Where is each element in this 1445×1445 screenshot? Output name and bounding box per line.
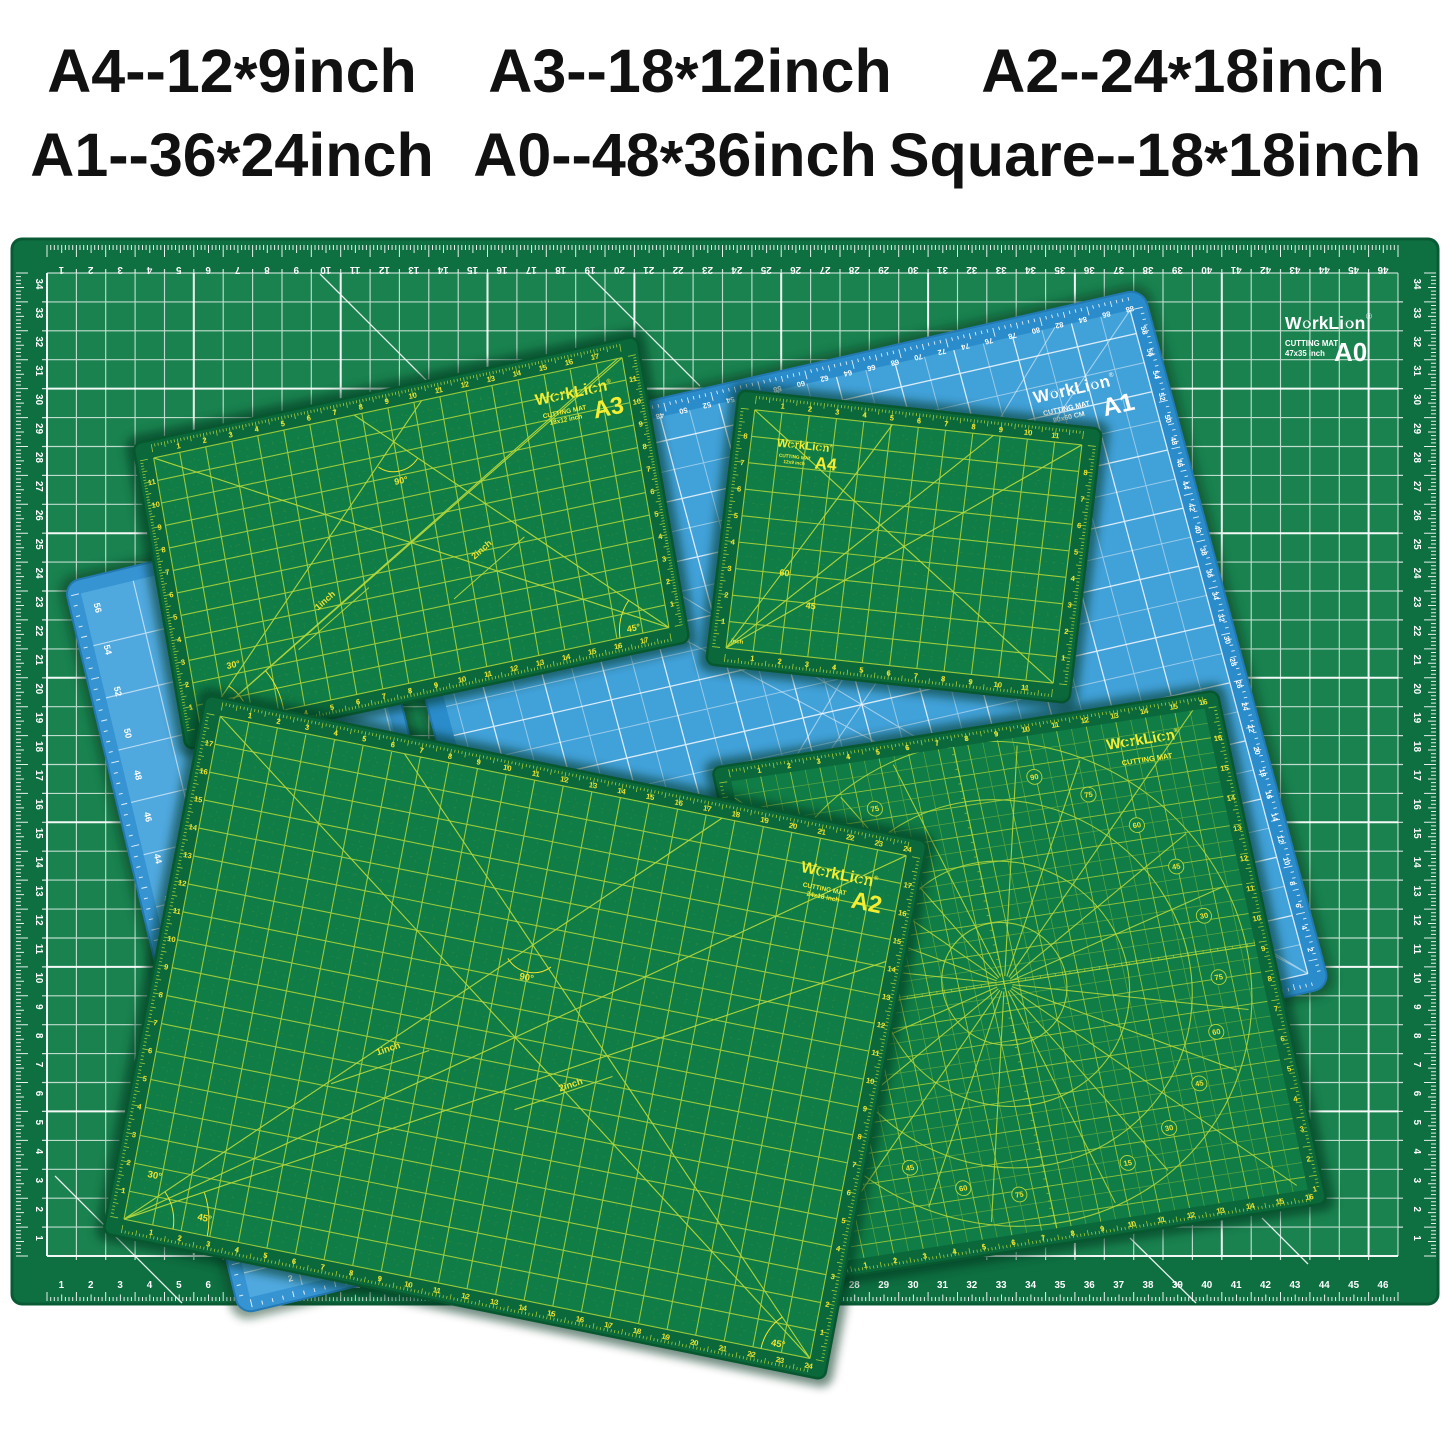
svg-text:27: 27 (1411, 481, 1422, 492)
svg-text:27: 27 (819, 264, 830, 275)
svg-text:17: 17 (1411, 770, 1422, 781)
svg-text:A1--36*24inch: A1--36*24inch (30, 121, 433, 196)
svg-text:17: 17 (903, 880, 913, 891)
svg-text:45: 45 (1348, 264, 1359, 275)
svg-text:6: 6 (205, 1280, 211, 1291)
svg-text:14: 14 (437, 264, 448, 275)
svg-text:1: 1 (1411, 1235, 1422, 1241)
svg-text:16: 16 (897, 908, 907, 919)
svg-text:45: 45 (805, 600, 816, 611)
svg-text:9: 9 (1411, 1004, 1422, 1010)
svg-text:12: 12 (559, 774, 569, 785)
svg-text:22: 22 (746, 1349, 756, 1360)
svg-text:12: 12 (460, 379, 470, 390)
svg-text:25: 25 (33, 539, 44, 550)
svg-text:23: 23 (33, 597, 44, 608)
svg-text:8: 8 (1411, 1033, 1422, 1039)
svg-text:13: 13 (408, 264, 419, 275)
svg-text:WorkLion: WorkLion (1285, 313, 1365, 333)
svg-text:23: 23 (874, 838, 884, 849)
svg-text:25: 25 (760, 264, 771, 275)
svg-text:39: 39 (1171, 264, 1182, 275)
svg-text:10: 10 (403, 1279, 413, 1290)
svg-text:19: 19 (33, 712, 44, 723)
svg-text:29: 29 (878, 264, 889, 275)
svg-text:3: 3 (117, 264, 123, 275)
svg-text:1: 1 (58, 264, 64, 275)
svg-text:11: 11 (434, 385, 443, 396)
svg-text:22: 22 (672, 264, 683, 275)
svg-text:21: 21 (1411, 654, 1422, 665)
svg-text:32: 32 (966, 1280, 977, 1291)
svg-text:32: 32 (33, 336, 44, 347)
svg-text:40: 40 (1201, 264, 1212, 275)
svg-text:7: 7 (234, 264, 240, 275)
svg-text:12: 12 (876, 1020, 886, 1031)
svg-text:33: 33 (995, 264, 1006, 275)
svg-text:43: 43 (1289, 1280, 1300, 1291)
svg-text:23: 23 (775, 1355, 785, 1366)
svg-text:32: 32 (1411, 336, 1422, 347)
svg-text:12: 12 (33, 915, 44, 926)
svg-text:13: 13 (183, 850, 193, 861)
svg-text:23: 23 (702, 264, 713, 275)
svg-text:12: 12 (1411, 915, 1422, 926)
svg-text:26: 26 (1411, 510, 1422, 521)
svg-text:31: 31 (1411, 365, 1422, 376)
svg-text:13: 13 (489, 1297, 499, 1308)
svg-text:17: 17 (525, 264, 536, 275)
svg-text:25: 25 (1411, 539, 1422, 550)
svg-text:22: 22 (845, 832, 855, 843)
svg-text:46: 46 (1378, 1280, 1389, 1291)
svg-text:10: 10 (502, 763, 512, 774)
svg-text:2: 2 (33, 1206, 44, 1212)
svg-text:4: 4 (147, 1280, 153, 1291)
svg-text:17: 17 (33, 770, 44, 781)
svg-text:5: 5 (1411, 1120, 1422, 1126)
svg-text:7: 7 (33, 1062, 44, 1068)
svg-text:36: 36 (1083, 264, 1094, 275)
svg-text:10: 10 (993, 680, 1002, 690)
svg-text:2: 2 (88, 1280, 94, 1291)
svg-text:8: 8 (264, 264, 270, 275)
svg-text:24: 24 (1411, 568, 1422, 579)
svg-text:A3--18*12inch: A3--18*12inch (488, 37, 891, 112)
svg-text:34: 34 (1411, 279, 1422, 290)
svg-text:A4: A4 (814, 453, 839, 475)
svg-text:5: 5 (33, 1120, 44, 1126)
svg-text:11: 11 (1411, 944, 1422, 955)
svg-text:9: 9 (33, 1004, 44, 1010)
svg-text:4: 4 (33, 1149, 44, 1155)
svg-text:12: 12 (461, 1291, 471, 1302)
svg-text:21: 21 (643, 264, 654, 275)
svg-text:33: 33 (33, 307, 44, 318)
svg-text:5: 5 (176, 1280, 182, 1291)
svg-text:18: 18 (555, 264, 566, 275)
svg-text:15: 15 (33, 828, 44, 839)
svg-text:12: 12 (177, 878, 187, 889)
svg-text:14: 14 (1411, 857, 1422, 868)
svg-text:16: 16 (613, 641, 623, 652)
svg-text:31: 31 (33, 365, 44, 376)
svg-text:16: 16 (33, 799, 44, 810)
svg-text:6: 6 (205, 264, 211, 275)
svg-text:6: 6 (1411, 1091, 1422, 1097)
svg-text:11: 11 (349, 264, 360, 275)
svg-text:20: 20 (613, 264, 624, 275)
svg-text:3: 3 (33, 1178, 44, 1184)
svg-text:42: 42 (1260, 264, 1271, 275)
svg-text:34: 34 (33, 279, 44, 290)
svg-text:1: 1 (33, 1235, 44, 1241)
svg-text:10: 10 (151, 499, 161, 510)
svg-text:10: 10 (33, 972, 44, 983)
svg-text:13: 13 (33, 886, 44, 897)
svg-text:22: 22 (33, 625, 44, 636)
svg-text:38: 38 (1142, 264, 1153, 275)
svg-text:27: 27 (33, 481, 44, 492)
svg-text:A0--48*36inch: A0--48*36inch (473, 121, 876, 196)
svg-text:18: 18 (33, 741, 44, 752)
svg-text:15: 15 (538, 363, 548, 374)
svg-text:16: 16 (564, 357, 574, 368)
svg-text:17: 17 (204, 738, 214, 749)
svg-text:28: 28 (33, 452, 44, 463)
svg-text:13: 13 (881, 992, 891, 1003)
svg-text:10: 10 (457, 674, 467, 685)
svg-text:2: 2 (87, 264, 93, 275)
svg-text:11: 11 (1021, 683, 1030, 693)
svg-text:41: 41 (1231, 1280, 1242, 1291)
svg-text:10: 10 (632, 396, 642, 407)
svg-text:34: 34 (1025, 264, 1036, 275)
svg-text:44: 44 (1319, 1280, 1330, 1291)
svg-text:11: 11 (483, 669, 492, 680)
svg-text:38: 38 (1143, 1280, 1154, 1291)
svg-text:2: 2 (1411, 1206, 1422, 1212)
svg-text:32: 32 (966, 264, 977, 275)
svg-text:1: 1 (59, 1280, 65, 1291)
svg-text:26: 26 (33, 510, 44, 521)
svg-text:10: 10 (1411, 972, 1422, 983)
svg-text:16: 16 (1411, 799, 1422, 810)
svg-text:24: 24 (33, 568, 44, 579)
svg-text:16: 16 (199, 766, 209, 777)
svg-text:37: 37 (1113, 1280, 1124, 1291)
svg-text:13: 13 (588, 780, 598, 791)
svg-text:37: 37 (1113, 264, 1124, 275)
svg-text:CUTTING MAT: CUTTING MAT (1285, 339, 1338, 348)
svg-text:9: 9 (293, 264, 299, 275)
svg-text:17: 17 (603, 1320, 613, 1331)
svg-text:30: 30 (907, 264, 918, 275)
svg-text:11: 11 (1051, 431, 1060, 441)
svg-text:4: 4 (1411, 1149, 1422, 1155)
svg-text:12: 12 (509, 663, 519, 674)
svg-text:A2--24*18inch: A2--24*18inch (981, 37, 1384, 112)
svg-text:14: 14 (33, 857, 44, 868)
svg-text:10: 10 (167, 934, 177, 945)
svg-text:17: 17 (702, 803, 712, 814)
svg-text:39: 39 (1172, 1280, 1183, 1291)
svg-text:35: 35 (1054, 1280, 1065, 1291)
svg-text:3: 3 (1411, 1178, 1422, 1184)
svg-text:19: 19 (584, 264, 595, 275)
svg-text:17: 17 (639, 635, 649, 646)
svg-text:11: 11 (33, 944, 44, 955)
svg-text:23: 23 (1411, 597, 1422, 608)
svg-text:4: 4 (146, 264, 152, 275)
svg-text:46: 46 (1377, 264, 1388, 275)
svg-text:20: 20 (1411, 683, 1422, 694)
svg-text:18: 18 (1411, 741, 1422, 752)
svg-text:13: 13 (486, 374, 496, 385)
svg-text:16: 16 (674, 797, 684, 808)
svg-text:31: 31 (937, 264, 948, 275)
svg-text:41: 41 (1230, 264, 1241, 275)
svg-text:29: 29 (1411, 423, 1422, 434)
svg-text:20: 20 (33, 683, 44, 694)
svg-text:44: 44 (1318, 264, 1329, 275)
svg-text:A0: A0 (1334, 337, 1367, 367)
svg-text:15: 15 (1411, 828, 1422, 839)
svg-text:30: 30 (1411, 394, 1422, 405)
svg-text:3: 3 (117, 1280, 123, 1291)
svg-text:11: 11 (628, 374, 637, 385)
svg-text:60: 60 (779, 567, 790, 578)
svg-text:34: 34 (1025, 1280, 1036, 1291)
svg-text:36: 36 (1084, 1280, 1095, 1291)
svg-text:47x35 inch: 47x35 inch (1285, 349, 1325, 358)
svg-text:33: 33 (1411, 307, 1422, 318)
svg-text:19: 19 (760, 815, 770, 826)
svg-text:8: 8 (33, 1033, 44, 1039)
svg-text:20: 20 (788, 821, 798, 832)
svg-text:6: 6 (33, 1091, 44, 1097)
svg-text:28: 28 (848, 264, 859, 275)
svg-text:15: 15 (587, 646, 597, 657)
svg-text:28: 28 (1411, 452, 1422, 463)
svg-text:19: 19 (661, 1332, 671, 1343)
svg-text:17: 17 (590, 351, 600, 362)
svg-text:35: 35 (1054, 264, 1065, 275)
svg-text:5: 5 (176, 264, 182, 275)
svg-text:A4--12*9inch: A4--12*9inch (47, 37, 417, 112)
svg-text:10: 10 (408, 390, 418, 401)
svg-text:18: 18 (632, 1326, 642, 1337)
svg-text:15: 15 (467, 264, 478, 275)
svg-text:18: 18 (731, 809, 741, 820)
svg-text:29: 29 (33, 423, 44, 434)
svg-text:19: 19 (1411, 712, 1422, 723)
svg-text:10: 10 (865, 1076, 875, 1087)
svg-text:30: 30 (908, 1280, 919, 1291)
svg-text:16: 16 (575, 1314, 585, 1325)
svg-text:7: 7 (1411, 1062, 1422, 1068)
svg-text:13: 13 (535, 658, 545, 669)
svg-text:Square--18*18inch: Square--18*18inch (889, 121, 1421, 196)
svg-text:12: 12 (378, 264, 389, 275)
svg-text:11: 11 (147, 477, 156, 488)
svg-text:24: 24 (731, 264, 742, 275)
svg-text:16: 16 (496, 264, 507, 275)
svg-text:30: 30 (33, 394, 44, 405)
svg-text:10: 10 (1023, 428, 1032, 438)
svg-text:13: 13 (1411, 886, 1422, 897)
svg-text:45: 45 (1348, 1280, 1359, 1291)
svg-text:42: 42 (1260, 1280, 1271, 1291)
svg-text:43: 43 (1289, 264, 1300, 275)
svg-text:29: 29 (878, 1280, 889, 1291)
svg-text:10: 10 (320, 264, 331, 275)
svg-text:22: 22 (1411, 625, 1422, 636)
svg-text:20: 20 (689, 1337, 699, 1348)
svg-text:40: 40 (1201, 1280, 1212, 1291)
svg-text:21: 21 (33, 654, 44, 665)
svg-text:31: 31 (937, 1280, 948, 1291)
svg-text:®: ® (1366, 312, 1372, 321)
svg-text:33: 33 (996, 1280, 1007, 1291)
svg-text:26: 26 (790, 264, 801, 275)
